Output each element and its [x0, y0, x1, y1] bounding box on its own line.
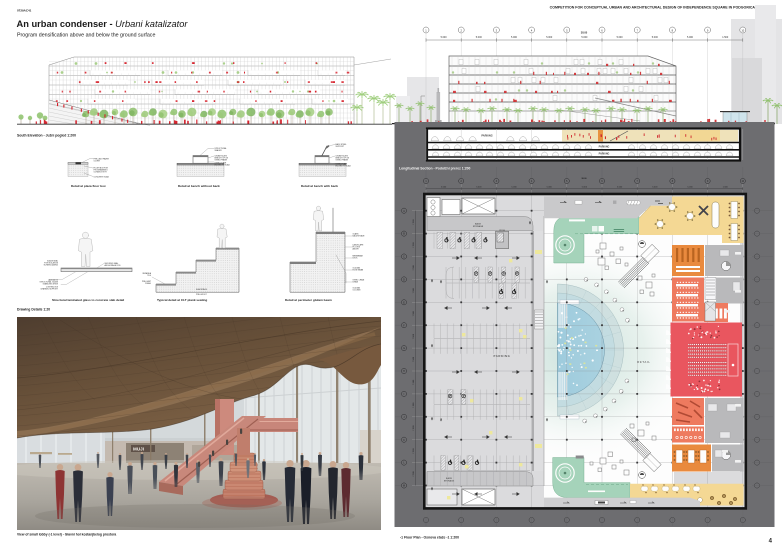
svg-text:STAINLESS SHOE: STAINLESS SHOE — [43, 283, 59, 286]
svg-text:P: P — [489, 272, 491, 276]
svg-text:7.500: 7.500 — [413, 219, 415, 225]
svg-text:BALUSTRADE: BALUSTRADE — [353, 234, 366, 237]
svg-text:EDGE BEAM: EDGE BEAM — [353, 268, 364, 271]
svg-text:Longitudinal Section - Podolžn: Longitudinal Section - Podolžni prerez 1… — [399, 167, 471, 171]
svg-text:5.000: 5.000 — [476, 186, 482, 188]
svg-text:7.500: 7.500 — [413, 471, 415, 477]
svg-text:P: P — [475, 272, 477, 276]
svg-text:SCREEDCASING: SCREEDCASING — [44, 264, 59, 267]
svg-text:DECK: DECK — [353, 257, 359, 259]
svg-text:7.500: 7.500 — [413, 425, 415, 431]
svg-text:7.500: 7.500 — [413, 356, 415, 362]
svg-text:Detail at perimeter glulam bea: Detail at perimeter glulam beam — [285, 298, 332, 302]
svg-text:5.000: 5.000 — [511, 36, 518, 39]
svg-text:38.00: 38.00 — [581, 178, 587, 180]
svg-text:PARKING: PARKING — [481, 135, 492, 138]
svg-text:38.00: 38.00 — [581, 31, 588, 35]
svg-text:MUJI: MUJI — [133, 447, 144, 452]
svg-text:G: G — [403, 348, 405, 350]
svg-text:7.500: 7.500 — [413, 242, 415, 248]
svg-text:SHIM SPACE: SHIM SPACE — [196, 288, 208, 291]
svg-text:7.500: 7.500 — [413, 287, 415, 293]
svg-text:P: P — [503, 272, 505, 276]
svg-text:5.000: 5.000 — [441, 186, 447, 188]
svg-text:7.500: 7.500 — [413, 310, 415, 316]
svg-text:5.000: 5.000 — [687, 186, 693, 188]
svg-text:BOLTED TO SLAB: BOLTED TO SLAB — [215, 163, 231, 166]
svg-text:PPOM: PPOM — [499, 230, 505, 232]
svg-text:Typical detail at CLT plank se: Typical detail at CLT plank seating — [157, 298, 207, 302]
svg-text:5.000: 5.000 — [547, 186, 553, 188]
svg-text:1.500: 1.500 — [723, 186, 729, 188]
svg-text:7.500: 7.500 — [413, 333, 415, 339]
svg-text:5.000: 5.000 — [687, 36, 694, 39]
svg-text:-1 Floor Plan - Osnova etaže -: -1 Floor Plan - Osnova etaže -1 1:200 — [400, 536, 459, 540]
svg-text:PARKING: PARKING — [599, 153, 610, 156]
svg-text:Detail at bench with back: Detail at bench with back — [301, 184, 338, 188]
svg-text:0729AC41: 0729AC41 — [17, 9, 32, 13]
svg-text:P: P — [463, 394, 465, 398]
svg-text:7.500: 7.500 — [413, 402, 415, 408]
svg-text:5.000: 5.000 — [581, 36, 588, 39]
svg-text:1.500: 1.500 — [722, 36, 729, 39]
svg-text:Drawing Details 1:20: Drawing Details 1:20 — [17, 308, 50, 312]
svg-text:PARKING: PARKING — [494, 354, 511, 358]
svg-text:PARKING: PARKING — [599, 146, 610, 149]
svg-text:J: J — [403, 417, 404, 419]
svg-text:STORAGE: STORAGE — [473, 225, 484, 228]
svg-text:ANCHORAGE ROD: ANCHORAGE ROD — [105, 264, 122, 267]
svg-text:7.500: 7.500 — [413, 379, 415, 385]
svg-text:STEEL FRAME: STEEL FRAME — [336, 159, 349, 162]
svg-text:P: P — [449, 394, 451, 398]
svg-text:COMPETITION FOR CONCEPTUAL URB: COMPETITION FOR CONCEPTUAL URBAN AND ARC… — [550, 6, 756, 10]
svg-text:5.000: 5.000 — [511, 186, 517, 188]
svg-text:P: P — [516, 272, 518, 276]
svg-text:Detail at plaza floor box: Detail at plaza floor box — [71, 184, 106, 188]
svg-text:CONNECTIVITY: CONNECTIVITY — [94, 172, 108, 174]
svg-text:5.000: 5.000 — [441, 36, 448, 39]
svg-text:TILE: TILE — [147, 275, 152, 277]
svg-text:SUPPORT: SUPPORT — [336, 146, 346, 148]
svg-text:Structural laminated glass to: Structural laminated glass to concrete s… — [52, 298, 124, 302]
svg-text:PRE-GROUT: PRE-GROUT — [196, 294, 208, 296]
svg-text:SEALER: SEALER — [215, 149, 223, 152]
svg-text:4: 4 — [769, 539, 773, 545]
svg-text:PLANK: PLANK — [145, 282, 152, 285]
svg-text:5.000: 5.000 — [476, 36, 483, 39]
svg-text:Detail at bench without back: Detail at bench without back — [178, 184, 220, 188]
svg-text:5.000: 5.000 — [546, 36, 553, 39]
svg-text:RETAIL: RETAIL — [637, 360, 651, 364]
svg-text:COLUMN: COLUMN — [353, 289, 361, 291]
svg-text:5.000: 5.000 — [652, 36, 659, 39]
svg-text:5.000: 5.000 — [617, 36, 624, 39]
svg-text:STORAGE: STORAGE — [444, 480, 455, 483]
svg-text:CHANNEL SUPPORT: CHANNEL SUPPORT — [40, 287, 59, 290]
svg-text:7.500: 7.500 — [413, 264, 415, 270]
svg-text:South Elevation - Južni pogled: South Elevation - Južni pogled 1:200 — [17, 134, 76, 138]
svg-text:Program densification above an: Program densification above and below th… — [17, 33, 155, 39]
svg-text:5.000: 5.000 — [582, 186, 588, 188]
svg-text:7.500: 7.500 — [413, 448, 415, 454]
svg-text:DRAIN: DRAIN — [353, 280, 359, 283]
svg-text:5.000: 5.000 — [652, 186, 658, 188]
svg-text:5.000: 5.000 — [617, 186, 623, 188]
svg-text:View of small lobby (-1 level): View of small lobby (-1 level) - Glavni … — [17, 533, 116, 537]
svg-text:ABOVE: ABOVE — [353, 248, 360, 251]
svg-text:CONCRETE SLAB: CONCRETE SLAB — [94, 175, 110, 178]
svg-text:An urban condenser - Urbani ka: An urban condenser - Urbani katalizator — [17, 19, 189, 29]
svg-text:M: M — [403, 486, 405, 488]
svg-text:STEEL FRAME: STEEL FRAME — [215, 159, 228, 162]
svg-text:COVER: COVER — [94, 160, 101, 162]
svg-text:BOLTED TO SLAB: BOLTED TO SLAB — [336, 164, 352, 167]
